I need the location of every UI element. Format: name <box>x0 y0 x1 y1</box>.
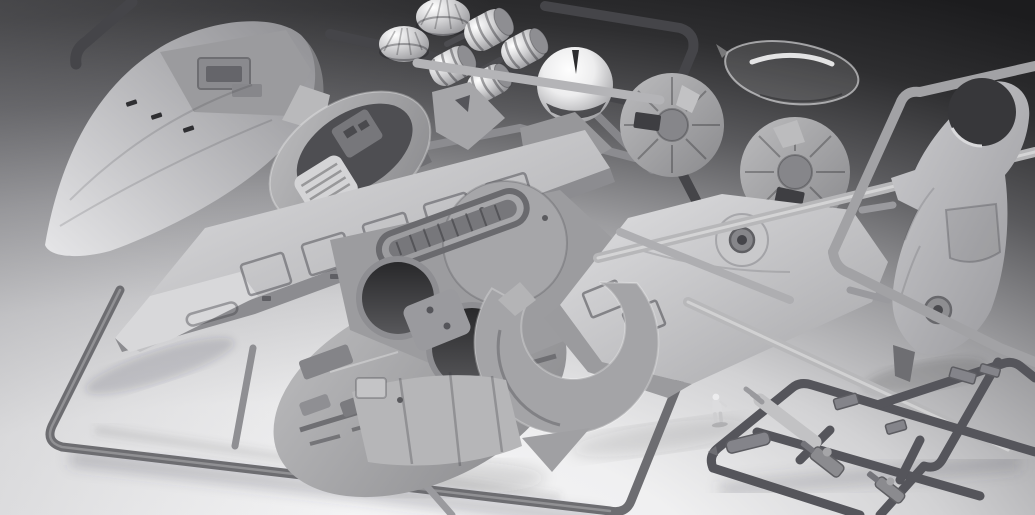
model-kit-scene <box>0 0 1035 515</box>
clear-canopy <box>716 41 858 104</box>
shield-tab <box>356 378 386 398</box>
side-disc-1 <box>620 73 724 177</box>
ribbed-dome-2 <box>379 26 429 62</box>
cowl-bracket-slot <box>206 66 242 82</box>
dark-frame-left <box>76 2 132 64</box>
ribbed-dome-1 <box>416 0 470 36</box>
fuselage-half <box>891 78 1029 382</box>
fuselage-pocket <box>946 204 1000 262</box>
frame-stub-1 <box>235 348 253 446</box>
model-kit-photo <box>0 0 1035 515</box>
